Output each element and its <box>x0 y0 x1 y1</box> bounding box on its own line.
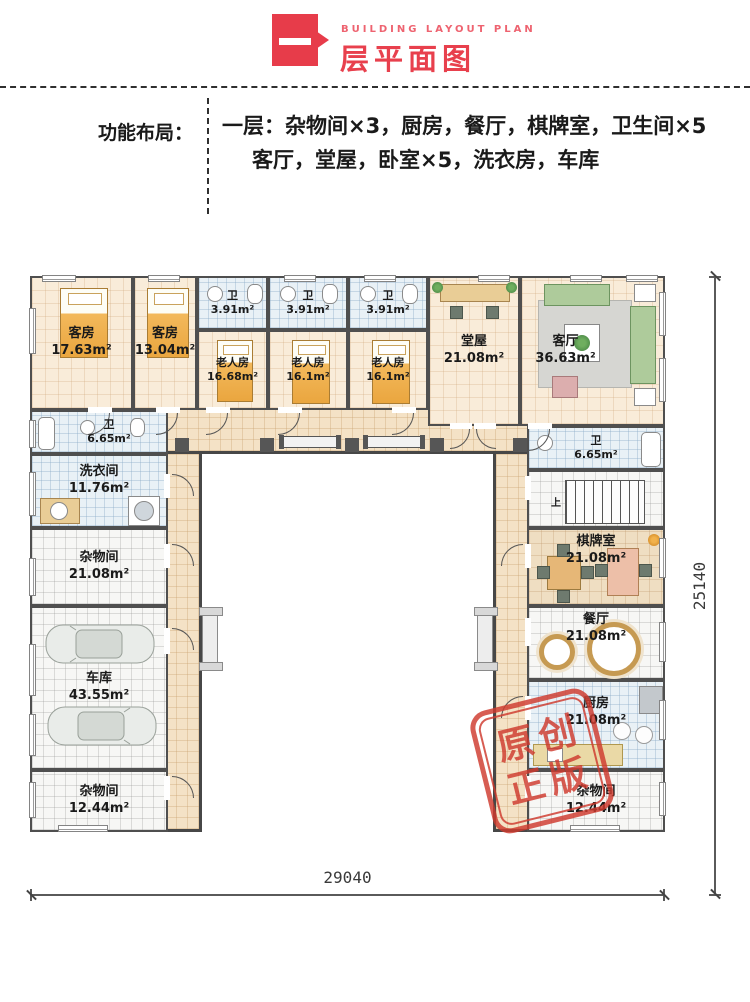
room-area: 3.91m² <box>366 303 409 317</box>
logo-arrow-icon <box>316 31 329 49</box>
dimension-line <box>30 894 665 896</box>
column-icon <box>260 438 274 452</box>
room-name: 卫 <box>104 418 115 432</box>
room-area: 13.04m² <box>135 343 195 360</box>
room-elder-3: 老人房16.1m² <box>348 330 428 410</box>
header-divider <box>0 86 750 88</box>
function-panel-label: 功能布局： <box>98 118 193 145</box>
door-gap <box>525 476 531 500</box>
room-storage-1: 杂物间21.08m² <box>30 528 168 606</box>
column-icon <box>513 438 527 452</box>
room-area: 6.65m² <box>87 432 130 446</box>
stair-hall: 上 <box>527 470 665 528</box>
logo-yi-bar-icon <box>279 38 311 45</box>
room-dining: 餐厅21.08m² <box>527 606 665 680</box>
room-name: 客房 <box>152 326 178 343</box>
room-name: 老人房 <box>292 356 325 370</box>
room-main-hall: 堂屋21.08m² <box>428 276 520 426</box>
room-area: 16.68m² <box>207 370 258 384</box>
porch-column-icon <box>477 608 493 670</box>
staircase <box>565 480 645 524</box>
room-area: 21.08m² <box>444 351 504 368</box>
porch-column-icon <box>202 608 218 670</box>
room-name: 老人房 <box>216 356 249 370</box>
function-panel-divider <box>207 98 209 214</box>
room-name: 客房 <box>68 326 94 343</box>
room-name: 棋牌室 <box>576 534 615 551</box>
column-icon <box>175 438 189 452</box>
room-area: 3.91m² <box>286 303 329 317</box>
column-icon <box>345 438 359 452</box>
room-laundry: 洗衣间11.76m² <box>30 454 168 528</box>
room-area: 21.08m² <box>566 629 626 646</box>
room-name: 杂物间 <box>79 784 118 801</box>
page-title: 层平面图 <box>340 36 476 78</box>
room-name: 卫 <box>383 289 394 303</box>
dimension-width-label: 29040 <box>323 868 371 887</box>
railing-icon <box>364 436 424 448</box>
room-elder-1: 老人房16.68m² <box>197 330 268 410</box>
room-name: 堂屋 <box>461 334 487 351</box>
room-area: 17.63m² <box>51 343 111 360</box>
page: { "header": { "icon_text": "一", "subtitl… <box>0 0 750 1002</box>
room-bath-3: 卫3.91m² <box>348 276 428 330</box>
room-area: 6.65m² <box>574 448 617 462</box>
room-area: 12.44m² <box>69 801 129 818</box>
room-elder-2: 老人房16.1m² <box>268 330 348 410</box>
bottom-dimension: 29040 <box>30 866 665 910</box>
room-name: 卫 <box>227 289 238 303</box>
room-area: 36.63m² <box>535 351 595 368</box>
room-garage: 车库43.55m² <box>30 606 168 770</box>
logo-red-square <box>272 14 318 66</box>
room-name: 洗衣间 <box>79 464 118 481</box>
dimension-height-label: 25140 <box>690 562 709 610</box>
room-bath-2: 卫3.91m² <box>268 276 348 330</box>
room-area: 43.55m² <box>69 688 129 705</box>
room-name: 车库 <box>86 671 112 688</box>
room-bath-right: 卫6.65m² <box>527 426 665 470</box>
room-area: 21.08m² <box>69 567 129 584</box>
room-bath-left: 卫6.65m² <box>30 410 168 454</box>
room-name: 杂物间 <box>79 550 118 567</box>
room-area: 21.08m² <box>566 551 626 568</box>
header-subtitle: BUILDING LAYOUT PLAN <box>341 24 536 35</box>
room-guest-1: 客房17.63m² <box>30 276 133 410</box>
room-name: 老人房 <box>372 356 405 370</box>
room-name: 卫 <box>591 434 602 448</box>
stamp-text-row: 原创 <box>476 704 597 775</box>
function-line-1: 一层：杂物间×3，厨房，餐厅，棋牌室，卫生间×5 <box>222 110 706 140</box>
room-area: 16.1m² <box>366 370 409 384</box>
room-name: 餐厅 <box>583 612 609 629</box>
railing-icon <box>280 436 340 448</box>
column-icon <box>430 438 444 452</box>
room-area: 11.76m² <box>69 481 129 498</box>
room-storage-2: 杂物间12.44m² <box>30 770 168 832</box>
function-line-2: 客厅，堂屋，卧室×5，洗衣房，车库 <box>252 144 599 174</box>
room-game: 棋牌室21.08m² <box>527 528 665 606</box>
room-area: 16.1m² <box>286 370 329 384</box>
room-name: 卫 <box>303 289 314 303</box>
stamp-text-row: 正版 <box>487 747 608 818</box>
stairs-up-label: 上 <box>551 494 561 509</box>
room-area: 3.91m² <box>211 303 254 317</box>
room-name: 客厅 <box>552 334 578 351</box>
right-dimension: 25140 <box>690 276 736 896</box>
dimension-line <box>714 276 716 896</box>
room-living: 客厅36.63m² <box>520 276 665 426</box>
room-bath-1: 卫3.91m² <box>197 276 268 330</box>
room-guest-2: 客房13.04m² <box>133 276 197 410</box>
